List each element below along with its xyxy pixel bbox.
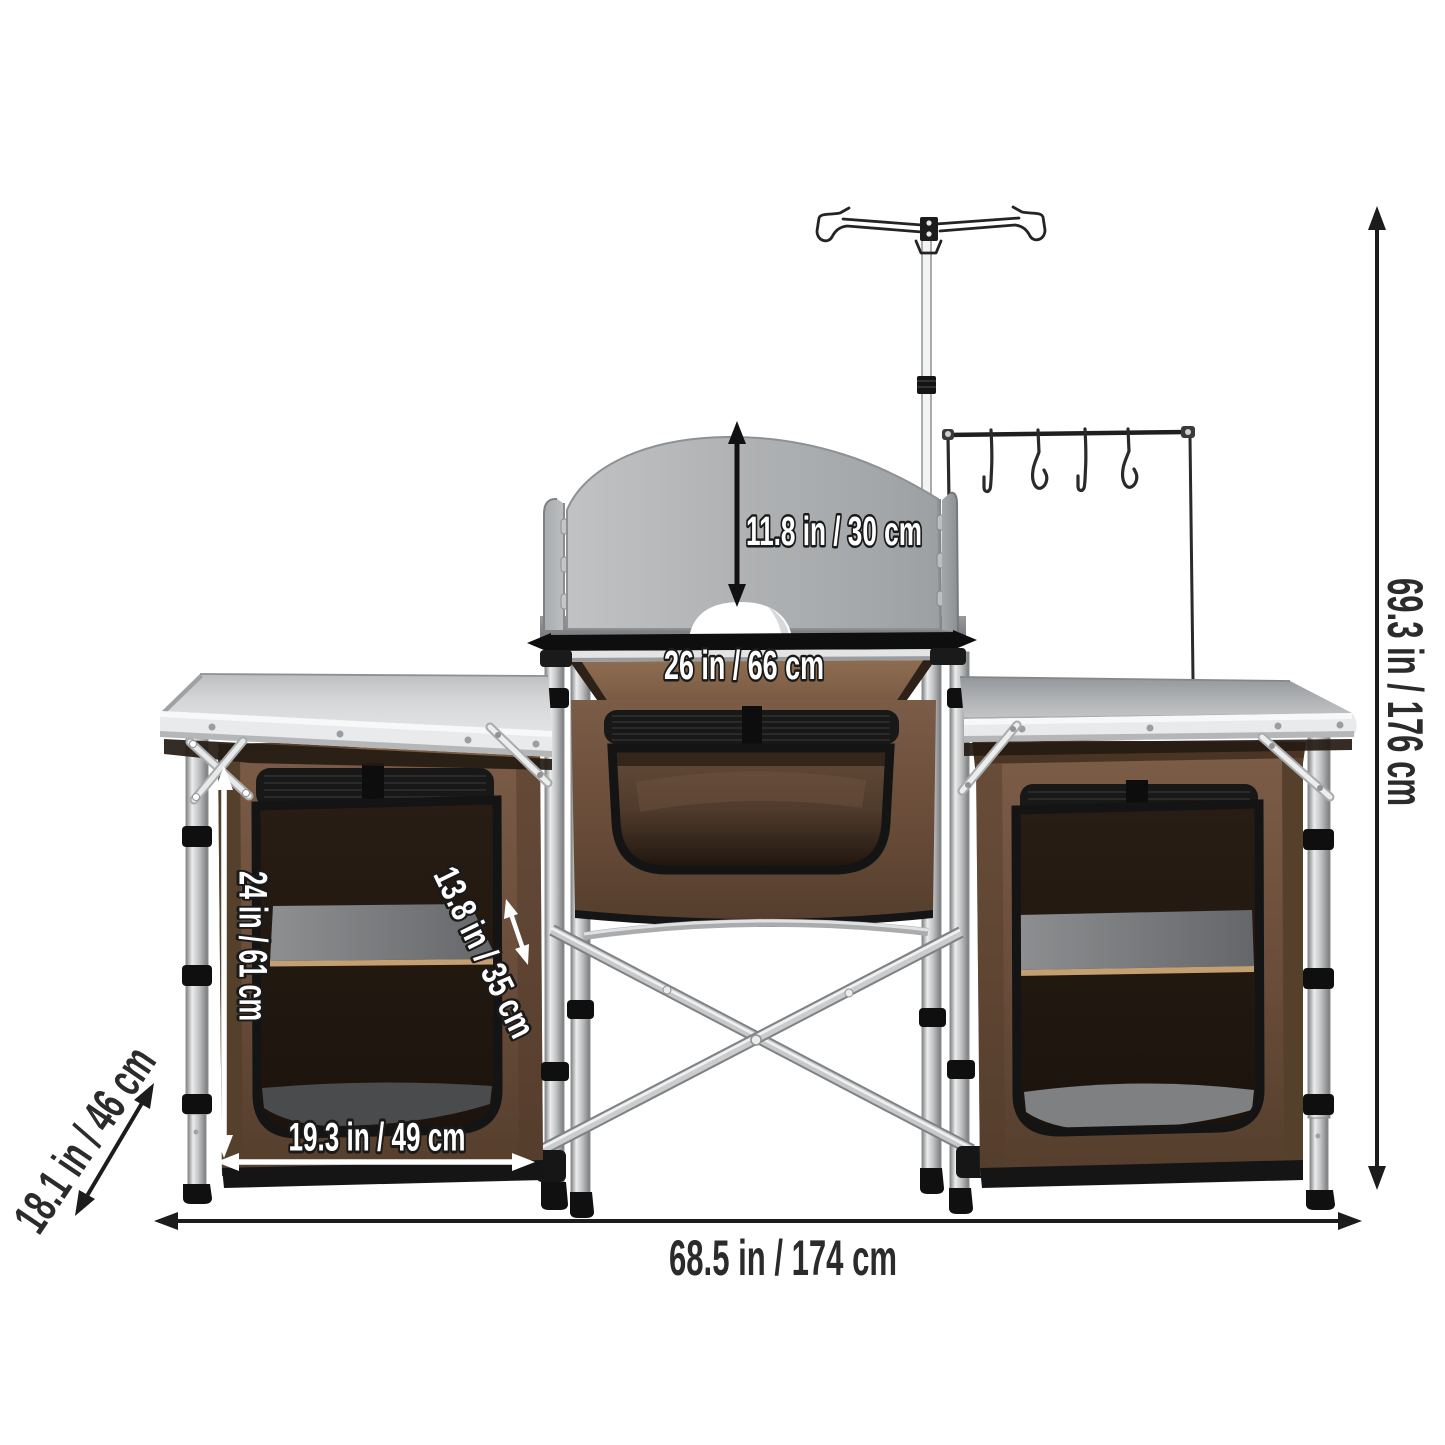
svg-text:19.3 in / 49 cm: 19.3 in / 49 cm (289, 1115, 466, 1159)
svg-text:24 in / 61 cm: 24 in / 61 cm (231, 871, 275, 1021)
svg-text:26 in / 66 cm: 26 in / 66 cm (664, 642, 824, 688)
svg-text:68.5 in / 174 cm: 68.5 in / 174 cm (669, 1230, 897, 1286)
svg-text:11.8 in / 30 cm: 11.8 in / 30 cm (746, 508, 922, 554)
svg-text:69.3 in / 176 cm: 69.3 in / 176 cm (1377, 578, 1433, 806)
